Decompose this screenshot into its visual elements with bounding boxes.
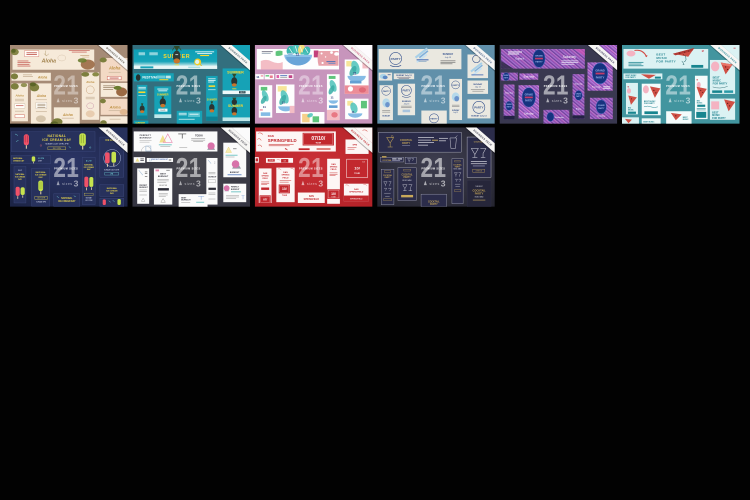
svg-text:Aloha: Aloha <box>108 65 121 70</box>
svg-text:PARTY: PARTY <box>596 75 605 79</box>
svg-text:COCKTAIL: COCKTAIL <box>382 159 392 162</box>
svg-text:COCKTAIL: COCKTAIL <box>428 200 440 203</box>
svg-text:TODAY: TODAY <box>195 134 203 137</box>
svg-text:Saturday: Saturday <box>555 116 565 119</box>
svg-text:Saturday: Saturday <box>563 55 577 59</box>
svg-text:Enjoy it: Enjoy it <box>516 57 525 60</box>
svg-text:ICE CREAM DAY: ICE CREAM DAY <box>42 138 72 142</box>
svg-text:Aloha: Aloha <box>15 93 25 97</box>
svg-text:FIELD: FIELD <box>262 178 268 180</box>
svg-text:19-21: 19-21 <box>160 110 165 112</box>
svg-text:BURNOUT: BURNOUT <box>139 187 148 189</box>
svg-text:BURNOUT: BURNOUT <box>208 177 216 179</box>
svg-text:PARTY: PARTY <box>452 84 459 87</box>
svg-text:SUNDAY | JULY 13TH | 2PM: SUNDAY | JULY 13TH | 2PM <box>45 143 68 146</box>
svg-text:JF 2PM: JF 2PM <box>38 158 45 160</box>
svg-text:Aloha: Aloha <box>41 59 56 65</box>
svg-text:PARTY: PARTY <box>525 100 533 103</box>
svg-text:07/: 07/ <box>263 197 267 201</box>
svg-text:PARTY: PARTY <box>475 192 484 196</box>
svg-text:July 13: July 13 <box>453 112 458 114</box>
svg-text:SUNDAY: SUNDAY <box>382 114 390 117</box>
svg-text:Saturday: Saturday <box>575 82 584 85</box>
svg-text:PARTY: PARTY <box>430 203 438 206</box>
svg-text:DAN: DAN <box>309 195 314 198</box>
svg-text:SUNDAY July 13: SUNDAY July 13 <box>396 74 412 77</box>
svg-text:Aloha: Aloha <box>36 94 46 98</box>
svg-text:FESTIVAL: FESTIVAL <box>142 76 158 80</box>
svg-text:11: 11 <box>353 71 357 75</box>
svg-text:SUNDAY July 13: SUNDAY July 13 <box>471 114 487 117</box>
svg-text:11: 11 <box>331 95 334 99</box>
svg-text:PARTY: PARTY <box>474 106 483 110</box>
svg-text:FOR PARTY: FOR PARTY <box>625 76 636 79</box>
svg-text:PARTY: PARTY <box>430 117 438 120</box>
svg-text:GRAND: GRAND <box>595 68 605 72</box>
svg-text:FOR PARTY: FOR PARTY <box>644 102 655 105</box>
svg-text:BEST MUSIC: BEST MUSIC <box>643 121 655 123</box>
svg-text:Aloha: Aloha <box>37 75 47 79</box>
svg-text:FIELD: FIELD <box>331 169 337 171</box>
svg-text:MUSIC: MUSIC <box>697 103 703 105</box>
svg-text:BURNOUT: BURNOUT <box>181 200 191 202</box>
svg-text:BURNOUT: BURNOUT <box>231 189 240 191</box>
svg-text:JULY 2PM: JULY 2PM <box>85 200 93 202</box>
svg-text:SUNDAY: SUNDAY <box>443 52 454 56</box>
svg-text:19-21: 19-21 <box>240 92 245 94</box>
svg-text:11: 11 <box>351 110 354 114</box>
svg-text:A 5-7M: A 5-7M <box>86 159 92 162</box>
svg-text:July 13: July 13 <box>445 57 452 59</box>
svg-text:July 13: July 13 <box>475 86 481 88</box>
svg-text:MUSIC: MUSIC <box>683 119 689 121</box>
svg-text:NATIONAL: NATIONAL <box>61 197 73 200</box>
svg-text:TOUR: TOUR <box>354 173 360 175</box>
svg-text:GRAND: GRAND <box>525 93 534 96</box>
svg-text:DAY: DAY <box>110 192 115 195</box>
svg-text:Saturday: Saturday <box>592 86 602 89</box>
svg-text:July 13: July 13 <box>404 103 410 105</box>
svg-text:FIELD: FIELD <box>282 177 289 179</box>
svg-text:11: 11 <box>256 75 259 79</box>
svg-text:THE BEST: THE BEST <box>475 186 482 188</box>
svg-text:BURNOUT: BURNOUT <box>158 176 169 178</box>
svg-text:Saturday: Saturday <box>524 112 534 115</box>
svg-text:COCKTAIL: COCKTAIL <box>402 173 414 176</box>
svg-text:SUMMER: SUMMER <box>157 93 169 97</box>
svg-text:PARTY: PARTY <box>403 176 411 179</box>
svg-text:TOUR: TOUR <box>315 142 321 144</box>
svg-text:Enjoy: Enjoy <box>576 108 582 110</box>
svg-text:JOIN US: JOIN US <box>475 171 482 173</box>
svg-text:Saturday: Saturday <box>505 91 514 94</box>
svg-text:PARTY: PARTY <box>402 89 410 92</box>
svg-text:BURNOUT: BURNOUT <box>230 172 240 174</box>
svg-text:11: 11 <box>263 105 266 109</box>
svg-text:TIME: TIME <box>232 88 237 90</box>
svg-text:FOR PARTY: FOR PARTY <box>656 60 676 64</box>
svg-text:Aloha: Aloha <box>85 80 95 84</box>
svg-text:SPRINGFIELD: SPRINGFIELD <box>349 192 364 194</box>
svg-text:SUMMER: SUMMER <box>207 99 217 101</box>
svg-text:10/: 10/ <box>282 187 287 191</box>
svg-text:M: M <box>734 48 736 50</box>
svg-text:GRAND: GRAND <box>535 54 543 57</box>
svg-text:TOUR: TOUR <box>282 195 288 197</box>
svg-text:REGISTER: REGISTER <box>159 185 168 187</box>
svg-text:PERFECT BURNOUT: PERFECT BURNOUT <box>151 159 169 161</box>
svg-text:SPRINGFIELD: SPRINGFIELD <box>304 199 320 201</box>
svg-text:CREAM DAY: CREAM DAY <box>13 159 25 162</box>
svg-text:Saturday: Saturday <box>523 75 534 79</box>
svg-text:SUNDAY: SUNDAY <box>473 83 483 86</box>
svg-text:PARTY: PARTY <box>383 90 390 93</box>
svg-text:11: 11 <box>296 52 300 56</box>
svg-text:DAY: DAY <box>39 176 44 179</box>
svg-text:SUNDAY: SUNDAY <box>402 100 412 103</box>
svg-text:SPRINGFIELD: SPRINGFIELD <box>350 199 363 201</box>
svg-text:11: 11 <box>282 100 285 104</box>
svg-text:ICE CREAM DAY: ICE CREAM DAY <box>58 200 76 203</box>
svg-text:Aloha: Aloha <box>62 113 73 117</box>
svg-text:MUSIC: MUSIC <box>628 110 634 112</box>
svg-text:Saturday: Saturday <box>597 114 606 117</box>
svg-text:JULY 13TH: JULY 13TH <box>37 198 46 200</box>
svg-text:BURNOUT: BURNOUT <box>140 138 153 140</box>
svg-text:PARTY: PARTY <box>535 60 543 63</box>
svg-text:M: M <box>702 50 704 53</box>
svg-text:FOR PARTY: FOR PARTY <box>712 117 726 120</box>
svg-text:FOR PARTY: FOR PARTY <box>713 82 728 86</box>
svg-text:SPRI: SPRI <box>352 144 357 146</box>
svg-text:Aloha: Aloha <box>109 104 122 109</box>
svg-text:PARTY: PARTY <box>385 176 392 179</box>
svg-text:SPRINGFIELD: SPRINGFIELD <box>268 138 297 143</box>
svg-text:10/: 10/ <box>354 166 360 171</box>
svg-text:10/: 10/ <box>331 192 336 196</box>
svg-text:JULY 13TH: JULY 13TH <box>53 148 62 150</box>
svg-text:07/10/: 07/10/ <box>311 136 325 142</box>
svg-text:PARTY: PARTY <box>402 142 410 145</box>
svg-text:PARTY: PARTY <box>455 165 461 168</box>
svg-text:PARTY: PARTY <box>598 107 605 110</box>
svg-text:GRAND: GRAND <box>598 104 606 107</box>
svg-text:PARTY: PARTY <box>391 57 401 61</box>
svg-text:SUNDAY: SUNDAY <box>452 109 460 112</box>
